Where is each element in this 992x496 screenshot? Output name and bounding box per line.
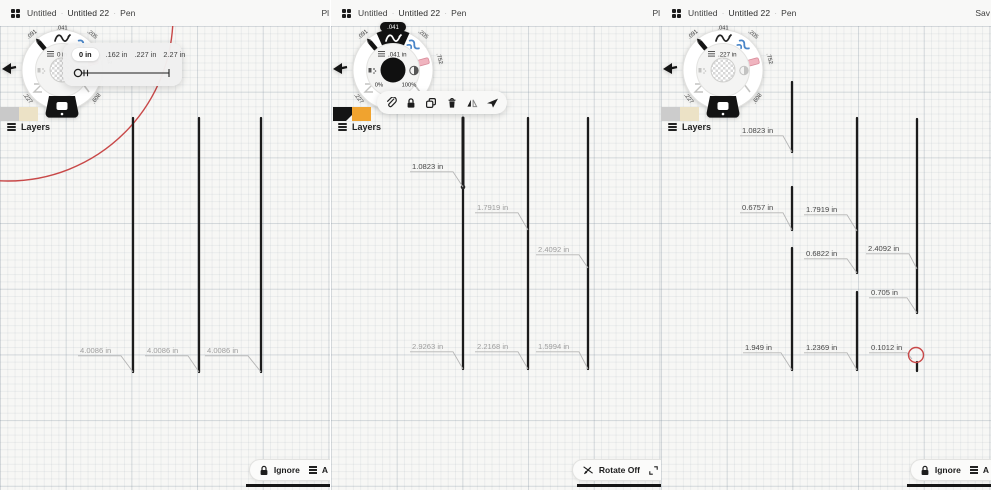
breadcrumb-tool[interactable]: Pen [451,8,466,18]
gallery-icon[interactable] [11,9,20,18]
layers-icon [7,123,16,131]
color-swatches [333,107,371,121]
measurement-label: 1.0823 in [412,162,443,171]
topbar-right-clipped-text: Sav [975,8,990,18]
color-swatch[interactable] [333,107,352,121]
breadcrumb-drawing[interactable]: Untitled 22 [728,8,770,18]
size-option-selected[interactable]: 0 in [72,48,99,61]
measurement-leader [743,353,792,370]
measurement-label: 0.1012 in [871,343,902,352]
breadcrumb-tool[interactable]: Pen [120,8,135,18]
current-size-readout[interactable]: .041 in [388,52,407,59]
pressure-max-label: 100% [402,83,417,89]
attach-icon[interactable] [385,97,397,109]
size-option[interactable]: .227 in [135,50,157,59]
breadcrumb-separator: · [113,8,116,18]
measurement-leader [866,254,917,269]
current-size-readout[interactable]: .227 in [718,52,737,59]
tool-size-label: .041 [387,25,399,31]
breadcrumb-drawing[interactable]: Untitled 22 [67,8,109,18]
panel-1: Untitled · Untitled 22 · Pen Pl 4.0086 i… [0,0,330,496]
measurement-label: 2.4092 in [538,245,569,254]
red-annotation-circle [909,348,924,363]
tool-size-label: .752 [435,53,444,65]
tool-size-label: .041 [717,26,728,32]
measurement-leader [740,213,792,230]
measurement-leader [804,215,857,231]
slider-knob[interactable] [74,69,81,76]
ignore-label: Ignore [274,465,300,475]
send-icon[interactable] [486,97,499,109]
layers-label: Layers [21,122,50,132]
measurement-leader [145,356,199,372]
gallery-icon[interactable] [342,9,351,18]
measurement-leader [205,356,261,372]
layers-button[interactable]: Layers [7,122,50,132]
selected-tool-tab[interactable] [707,96,740,118]
size-slider[interactable] [72,66,173,85]
size-popup: 0 in .162 in .227 in 2.27 in [63,43,182,86]
measurement-label: 1.5994 in [538,342,569,351]
selected-tool-tab[interactable] [46,96,79,118]
measurement-leader [804,259,857,273]
breadcrumb-project[interactable]: Untitled [688,8,718,18]
snap-ignore-button[interactable]: Ignore A [249,459,330,481]
menu-icon [309,466,317,473]
home-indicator-bar [577,484,661,487]
measurement-label: 2.9263 in [412,342,443,351]
measurement-leader [475,213,528,230]
layers-icon [338,123,347,131]
lock-icon [920,465,930,476]
color-swatch[interactable] [661,107,680,121]
lock-icon[interactable] [405,97,417,109]
measurement-leader [410,352,463,369]
measurement-label: 4.0086 in [147,346,178,355]
lock-icon [259,465,269,476]
rotate-off-button[interactable]: Rotate Off [572,459,661,481]
breadcrumb-separator: · [774,8,777,18]
measurement-leader [475,352,528,369]
panel-2: Untitled · Untitled 22 · Pen Pl 1.0823 i… [331,0,661,496]
snap-ignore-button[interactable]: Ignore A [910,459,991,481]
layers-icon [668,123,677,131]
tool-size-label: .041 [56,26,67,32]
triptych-screenshots: Untitled · Untitled 22 · Pen Pl 4.0086 i… [0,0,992,496]
breadcrumb-project[interactable]: Untitled [358,8,388,18]
pen-off-icon [582,464,594,476]
measurement-label: 2.4092 in [868,244,899,253]
layers-button[interactable]: Layers [338,122,381,132]
breadcrumb-project[interactable]: Untitled [27,8,57,18]
size-options: 0 in .162 in .227 in 2.27 in [63,48,182,61]
pressure-min-label: 0% [375,83,383,89]
measurement-leader [78,356,133,372]
measurement-label: 4.0086 in [207,346,238,355]
measurement-leader [410,172,463,187]
measurement-leader [869,353,912,359]
measurement-label: 1.949 in [745,343,772,352]
panel-3: Untitled · Untitled 22 · Pen Sav 1.0823 … [661,0,991,496]
ignore-label: Ignore [935,465,961,475]
measurement-label: 0.6757 in [742,203,773,212]
topbar-right-clipped-text: Pl [321,8,329,18]
color-swatches [661,107,699,121]
clipped-button-text: A [983,465,989,475]
topbar-right-clipped-text: Pl [652,8,660,18]
breadcrumb-tool[interactable]: Pen [781,8,796,18]
measurement-leader [536,352,588,369]
measurement-label: 0.705 in [871,288,898,297]
home-indicator-bar [246,484,330,487]
measurement-leader [869,298,917,313]
home-indicator-bar [907,484,991,487]
flip-horizontal-icon[interactable] [466,97,478,109]
measurement-label: 1.2369 in [806,343,837,352]
layers-label: Layers [682,122,711,132]
selection-action-toolbar [377,91,507,114]
color-swatch[interactable] [19,107,38,121]
breadcrumb-separator: · [444,8,447,18]
breadcrumb-drawing[interactable]: Untitled 22 [398,8,440,18]
color-swatch[interactable] [680,107,699,121]
measurement-label: 0.6822 in [806,249,837,258]
measurement-label: 1.7919 in [477,203,508,212]
color-swatch[interactable] [0,107,19,121]
measurement-leader [536,255,588,268]
color-swatches [0,107,38,121]
wheel-center-color[interactable] [711,58,735,82]
measurement-leader [804,353,857,370]
clipped-button-text: A [322,465,328,475]
layers-label: Layers [352,122,381,132]
measurement-label: 1.7919 in [806,205,837,214]
duplicate-icon[interactable] [425,97,437,109]
measurement-label: 4.0086 in [80,346,111,355]
layers-button[interactable]: Layers [668,122,711,132]
menu-icon [970,466,978,473]
color-swatch[interactable] [352,107,371,121]
size-option[interactable]: .162 in [106,50,128,59]
measurement-leader [740,136,792,152]
trash-icon[interactable] [446,97,458,109]
wheel-center-color[interactable] [381,58,406,83]
size-option[interactable]: 2.27 in [163,50,185,59]
breadcrumb-separator: · [722,8,725,18]
rotate-off-label: Rotate Off [599,465,640,475]
gallery-icon[interactable] [672,9,681,18]
tool-size-label: .752 [765,53,774,65]
measurement-label: 2.2168 in [477,342,508,351]
breadcrumb-separator: · [61,8,64,18]
breadcrumb-separator: · [392,8,395,18]
resize-icon [648,465,659,476]
